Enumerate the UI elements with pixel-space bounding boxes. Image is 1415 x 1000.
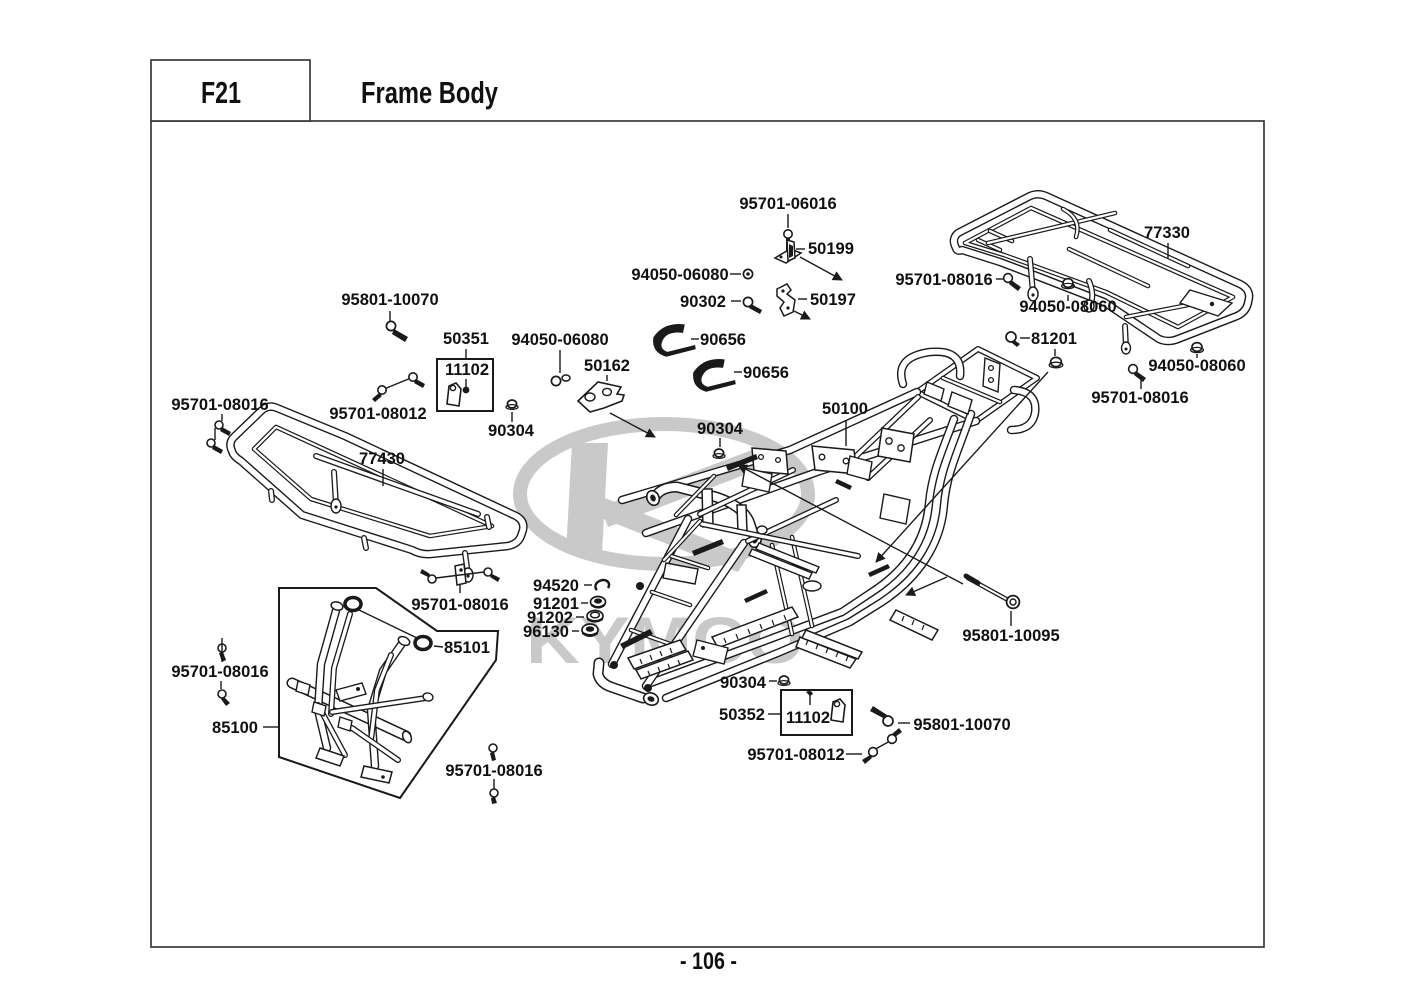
svg-text:77430: 77430 — [359, 450, 405, 468]
svg-text:50351: 50351 — [443, 330, 489, 348]
svg-text:95701-08016: 95701-08016 — [1091, 389, 1188, 407]
svg-text:95701-08016: 95701-08016 — [411, 596, 508, 614]
svg-text:95701-08016: 95701-08016 — [445, 762, 542, 780]
svg-text:90304: 90304 — [697, 420, 744, 438]
svg-text:11102: 11102 — [445, 361, 489, 379]
svg-text:85100: 85100 — [212, 719, 258, 737]
svg-text:50162: 50162 — [584, 357, 630, 375]
svg-text:85101: 85101 — [444, 639, 490, 657]
svg-text:90304: 90304 — [488, 422, 535, 440]
svg-text:81201: 81201 — [1031, 330, 1077, 348]
svg-text:11102: 11102 — [786, 709, 830, 727]
svg-text:94050-08060: 94050-08060 — [1148, 357, 1245, 375]
svg-text:50199: 50199 — [808, 240, 854, 258]
svg-text:50197: 50197 — [810, 291, 856, 309]
svg-text:95701-08012: 95701-08012 — [329, 405, 426, 423]
svg-text:94520: 94520 — [533, 577, 579, 595]
svg-text:90656: 90656 — [700, 331, 746, 349]
svg-text:50352: 50352 — [719, 706, 765, 724]
svg-text:Frame Body: Frame Body — [361, 75, 499, 110]
svg-text:95801-10095: 95801-10095 — [962, 627, 1059, 645]
svg-text:- 106 -: - 106 - — [680, 948, 737, 975]
svg-text:96130: 96130 — [523, 623, 569, 641]
svg-text:94050-06080: 94050-06080 — [511, 331, 608, 349]
svg-text:90302: 90302 — [680, 293, 726, 311]
svg-text:95701-06016: 95701-06016 — [739, 195, 836, 213]
svg-text:95701-08016: 95701-08016 — [171, 396, 268, 414]
svg-text:95801-10070: 95801-10070 — [341, 291, 438, 309]
svg-text:94050-06080: 94050-06080 — [631, 266, 728, 284]
svg-text:90304: 90304 — [720, 674, 767, 692]
svg-text:95801-10070: 95801-10070 — [913, 716, 1010, 734]
svg-text:95701-08016: 95701-08016 — [171, 663, 268, 681]
svg-text:50100: 50100 — [822, 400, 868, 418]
svg-text:77330: 77330 — [1144, 224, 1190, 242]
svg-text:F21: F21 — [201, 75, 241, 110]
svg-text:95701-08012: 95701-08012 — [747, 746, 844, 764]
svg-text:95701-08016: 95701-08016 — [895, 271, 992, 289]
svg-text:90656: 90656 — [743, 364, 789, 382]
